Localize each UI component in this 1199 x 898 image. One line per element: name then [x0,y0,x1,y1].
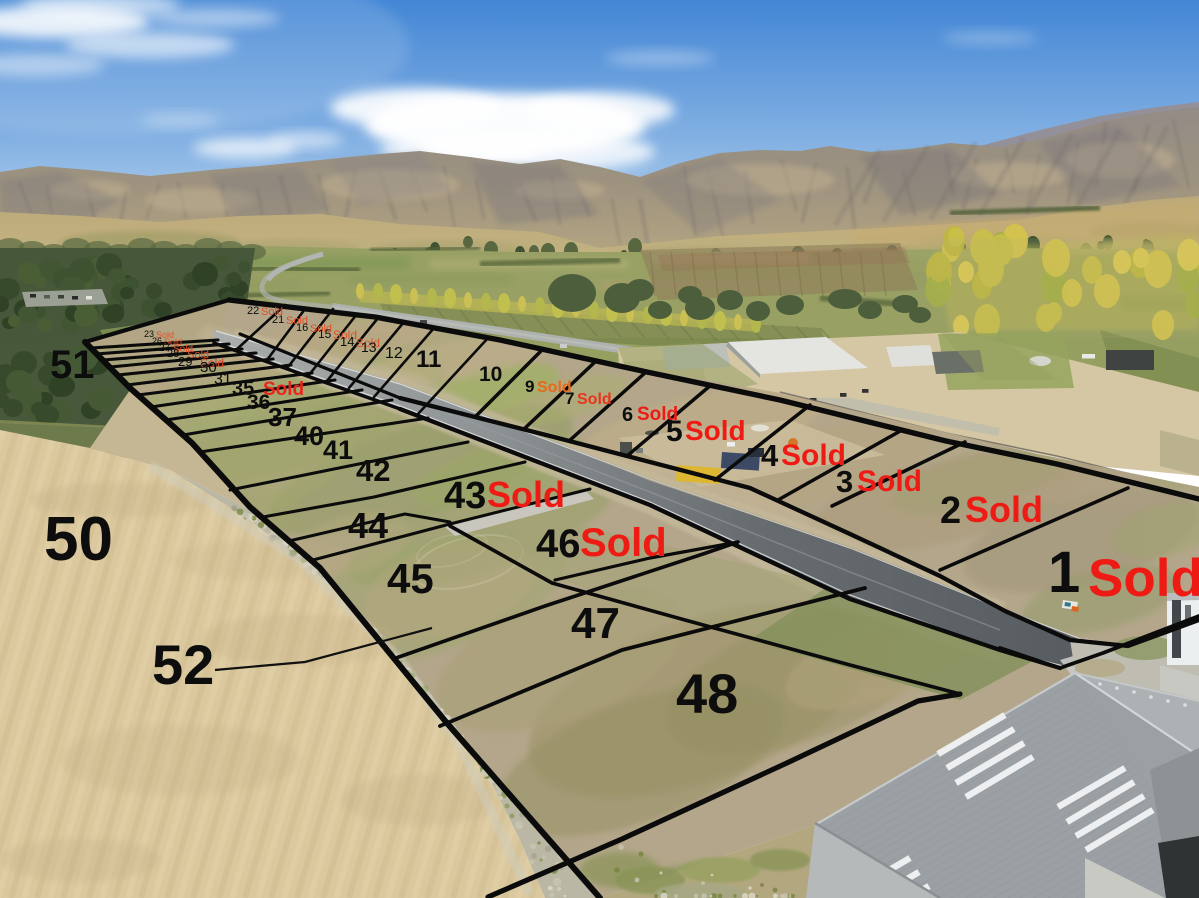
svg-text:15: 15 [318,327,332,341]
svg-text:43: 43 [444,475,486,517]
svg-text:Sold: Sold [577,391,612,408]
svg-text:21: 21 [272,314,284,326]
svg-text:45: 45 [387,555,434,602]
svg-text:9: 9 [525,377,534,396]
svg-text:29: 29 [178,354,192,369]
svg-text:16: 16 [296,322,308,334]
svg-text:51: 51 [50,343,95,387]
svg-text:52: 52 [152,633,214,696]
svg-text:3: 3 [836,464,853,499]
svg-text:Sold: Sold [1088,549,1199,608]
svg-text:Sold: Sold [857,465,922,498]
svg-text:42: 42 [356,453,390,488]
svg-text:14: 14 [340,334,354,349]
svg-text:47: 47 [571,599,620,648]
svg-text:Sold: Sold [685,415,746,446]
svg-text:10: 10 [479,363,502,386]
svg-text:2: 2 [940,490,961,532]
svg-text:1: 1 [1048,540,1080,605]
svg-text:13: 13 [361,339,377,355]
svg-text:31: 31 [214,371,232,388]
svg-text:Sold: Sold [965,489,1043,530]
svg-text:41: 41 [323,435,353,465]
svg-text:12: 12 [385,345,403,362]
svg-text:36: 36 [247,391,270,414]
svg-text:Sold: Sold [487,474,565,515]
svg-text:46: 46 [536,522,581,566]
svg-text:50: 50 [44,505,113,574]
svg-text:37: 37 [268,402,297,432]
svg-text:44: 44 [348,505,388,546]
svg-text:11: 11 [416,346,441,373]
svg-text:6: 6 [622,404,633,426]
svg-text:Sold: Sold [580,521,667,565]
svg-text:4: 4 [761,438,779,473]
svg-text:5: 5 [666,415,683,448]
svg-text:7: 7 [565,389,574,408]
svg-text:40: 40 [294,421,324,451]
svg-text:22: 22 [247,305,259,317]
svg-text:48: 48 [676,662,738,725]
